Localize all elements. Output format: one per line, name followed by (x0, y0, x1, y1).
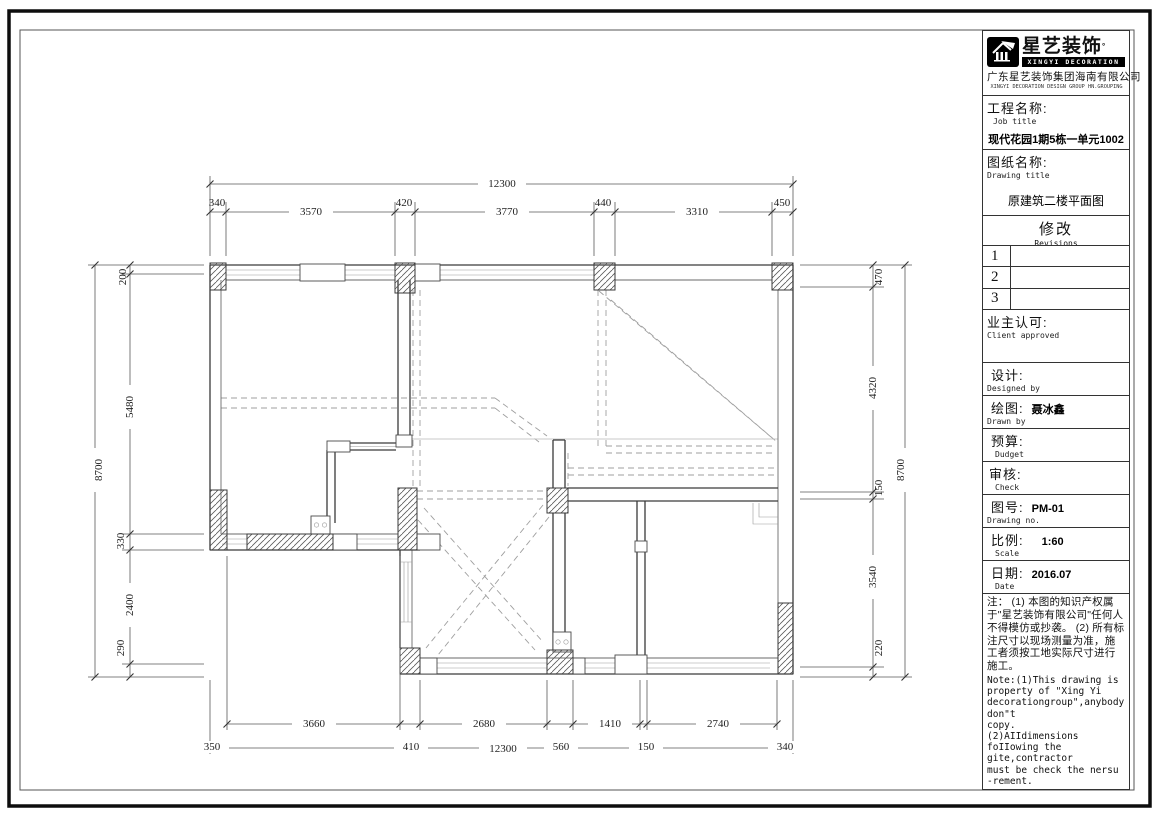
drawing-sheet: 12300 340 3570 420 3770 440 3310 450 870… (0, 0, 1159, 819)
budget-label-en: Dudget (987, 450, 1125, 459)
logo-section: 星艺装饰° XINGYI DECORATION 广东星艺装饰集团海南有限公司 X… (983, 31, 1129, 95)
dim-label: 2400 (124, 594, 136, 617)
dim-label: 410 (403, 741, 420, 753)
date-label: 日期: (987, 563, 1024, 582)
job-title-label: 工程名称: (987, 98, 1125, 117)
brand-name: 星艺装饰° (1022, 37, 1125, 57)
revision-row: 2 (983, 266, 1129, 287)
drawing-title-label-en: Drawing title (987, 171, 1125, 180)
dim-label: 2680 (473, 718, 496, 730)
dim-label: 3310 (686, 206, 709, 218)
dim-label: 12300 (489, 743, 517, 755)
check-label-en: Check (987, 483, 1125, 492)
dim-label: 560 (553, 741, 570, 753)
notes-chinese: 注： (1) 本图的知识产权属于"星艺装饰有限公司"任何人不得模仿或抄袭。 (2… (987, 596, 1125, 673)
revision-number: 1 (983, 246, 1011, 266)
designed-by-section: 设计: Designed by (983, 362, 1129, 395)
designed-by-label: 设计: (987, 365, 1125, 384)
scale-value: 1:60 (1042, 536, 1064, 548)
drawn-by-label: 绘图: (987, 398, 1024, 417)
check-section: 审核: Check (983, 461, 1129, 494)
dim-label: 450 (774, 197, 791, 209)
drawing-no-section: 图号: PM-01 Drawing no. (983, 494, 1129, 527)
xingyi-logo-icon (987, 37, 1019, 67)
job-title-section: 工程名称: Job title 现代花园1期5栋一单元1002 (983, 95, 1129, 149)
revision-entry (1011, 267, 1129, 287)
revision-row: 3 (983, 288, 1129, 309)
drawn-by-value: 聂冰鑫 (1032, 401, 1065, 417)
drawing-no-value: PM-01 (1032, 503, 1064, 515)
revision-number: 3 (983, 289, 1011, 309)
drawing-no-label-en: Drawing no. (987, 516, 1125, 525)
dim-label: 220 (873, 639, 885, 656)
date-section: 日期: 2016.07 Date (983, 560, 1129, 593)
scale-label: 比例: (987, 530, 1024, 549)
revision-entry (1011, 289, 1129, 309)
scale-label-en: Scale (987, 549, 1125, 558)
drawn-by-section: 绘图: 聂冰鑫 Drawn by (983, 395, 1129, 428)
brand-bar: XINGYI DECORATION (1022, 57, 1125, 67)
dim-label: 3540 (867, 566, 879, 589)
title-block: 星艺装饰° XINGYI DECORATION 广东星艺装饰集团海南有限公司 X… (982, 30, 1130, 790)
dim-label: 150 (638, 741, 655, 753)
dim-label: 3660 (303, 718, 326, 730)
job-title-value: 现代花园1期5栋一单元1002 (987, 131, 1125, 147)
scale-section: 比例: 1:60 Scale (983, 527, 1129, 560)
dim-label: 420 (396, 197, 413, 209)
company-name: 广东星艺装饰集团海南有限公司 (987, 69, 1125, 84)
drawing-title-label: 图纸名称: (987, 152, 1125, 171)
dim-label: 4320 (867, 377, 879, 400)
gas-meter-box (553, 632, 571, 652)
notes-section: 注： (1) 本图的知识产权属于"星艺装饰有限公司"任何人不得模仿或抄袭。 (2… (983, 593, 1129, 789)
revision-entry (1011, 246, 1129, 266)
dim-label: 12300 (488, 178, 516, 190)
drawing-title-section: 图纸名称: Drawing title 原建筑二楼平面图 (983, 149, 1129, 215)
dim-label: 340 (777, 741, 794, 753)
budget-label: 预算: (987, 431, 1125, 450)
check-label: 审核: (987, 464, 1125, 483)
dim-label: 330 (115, 532, 127, 549)
dim-label: 350 (204, 741, 221, 753)
client-approved-label: 业主认可: (987, 312, 1125, 331)
dim-label: 470 (873, 268, 885, 285)
drawn-by-label-en: Drawn by (987, 417, 1125, 426)
drawing-no-label: 图号: (987, 497, 1024, 516)
floor-plan (210, 263, 793, 674)
dim-label: 440 (595, 197, 612, 209)
sheet-border (9, 11, 1150, 806)
client-approved-label-en: Client approved (987, 331, 1125, 340)
job-title-label-en: Job title (987, 117, 1125, 126)
revision-number: 2 (983, 267, 1011, 287)
dim-label: 200 (117, 268, 129, 285)
gas-meter-box (311, 516, 330, 534)
revisions-label: 修改 (987, 218, 1125, 239)
dim-label: 1410 (599, 718, 622, 730)
dim-label: 290 (115, 639, 127, 656)
company-name-en: XINGYI DECORATION DESIGN GROUP HN.GROUPI… (990, 84, 1121, 90)
dim-label: 2740 (707, 718, 730, 730)
dim-label: 5480 (124, 396, 136, 419)
client-approved-section: 业主认可: Client approved (983, 309, 1129, 362)
dim-label: 3770 (496, 206, 519, 218)
revision-row: 1 (983, 246, 1129, 266)
dim-label: 340 (209, 197, 226, 209)
date-value: 2016.07 (1032, 569, 1072, 581)
revisions-table: 1 2 3 (983, 245, 1129, 309)
notes-english: Note:(1)This drawing is property of "Xin… (987, 675, 1125, 787)
date-label-en: Date (987, 582, 1125, 591)
budget-section: 预算: Dudget (983, 428, 1129, 461)
dim-label: 8700 (93, 459, 105, 482)
revisions-header: 修改 Revisions (983, 215, 1129, 245)
designed-by-label-en: Designed by (987, 384, 1125, 393)
dim-label: 150 (873, 479, 885, 496)
dim-label: 3570 (300, 206, 323, 218)
drawing-title-value: 原建筑二楼平面图 (987, 192, 1125, 209)
dim-label: 8700 (895, 459, 907, 482)
